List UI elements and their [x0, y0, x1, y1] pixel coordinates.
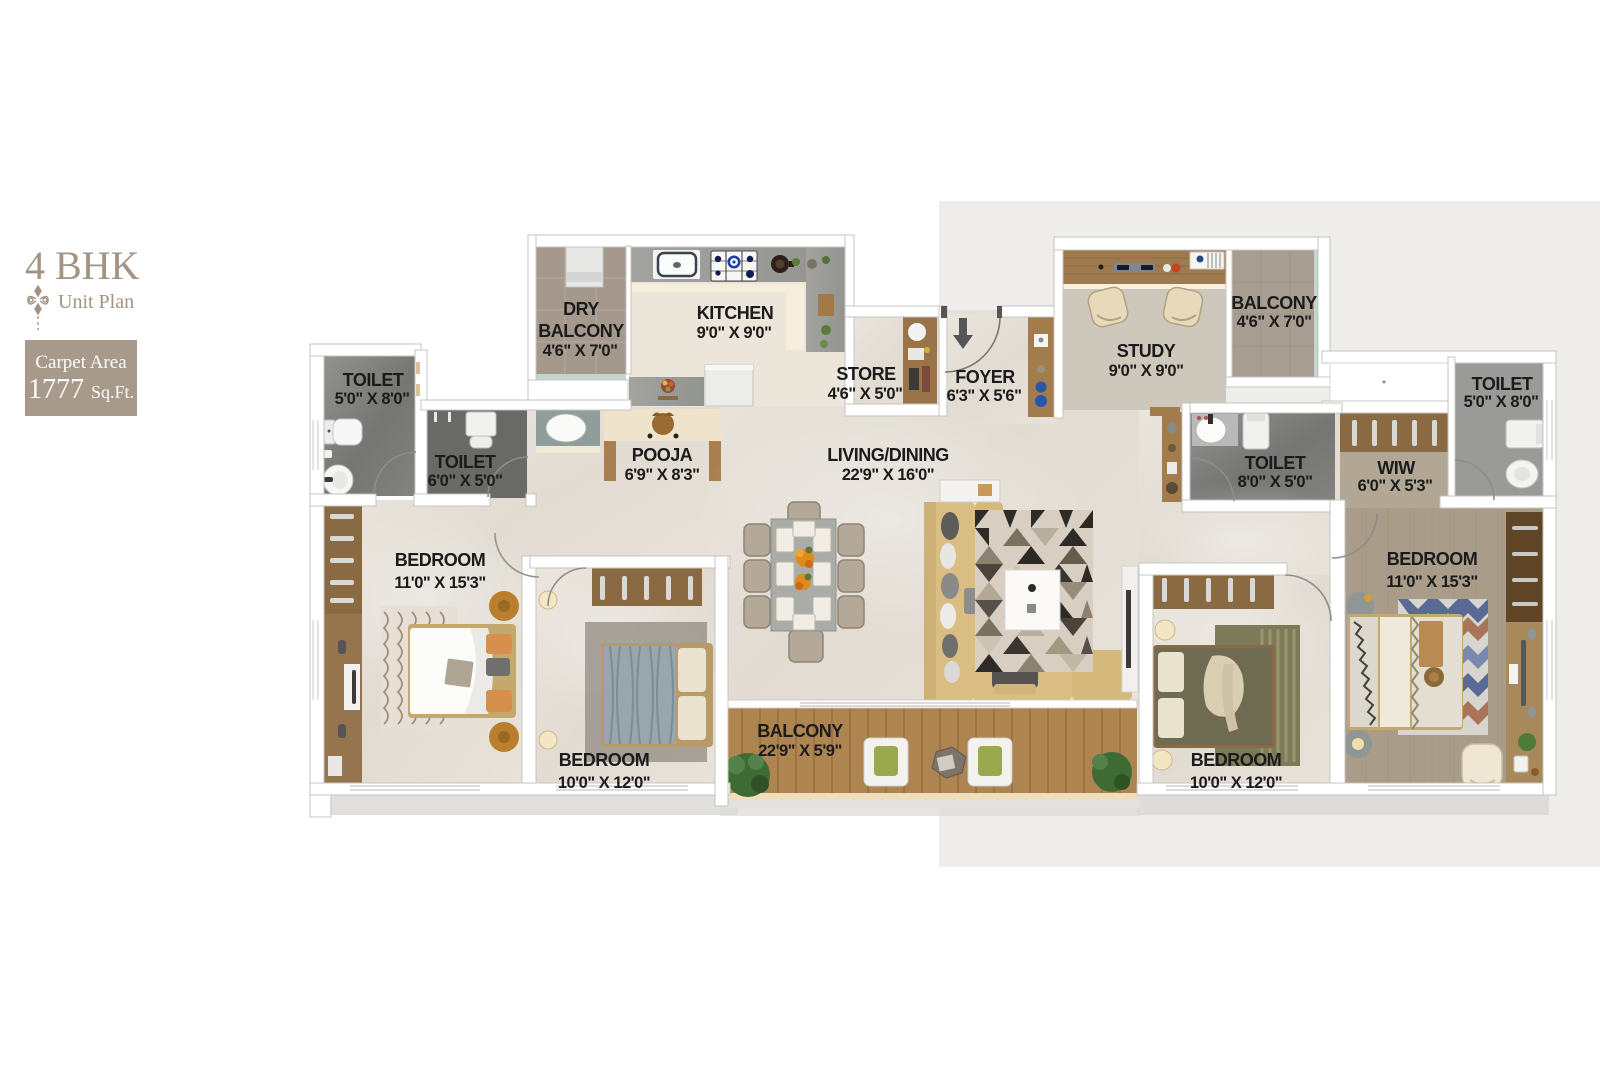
svg-text:10'0" X 12'0": 10'0" X 12'0"	[558, 774, 650, 792]
svg-text:11'0" X 15'3": 11'0" X 15'3"	[394, 574, 485, 592]
svg-text:5'0" X 8'0": 5'0" X 8'0"	[335, 390, 410, 408]
svg-text:TOILET: TOILET	[1245, 453, 1306, 473]
svg-text:10'0" X 12'0": 10'0" X 12'0"	[1190, 774, 1282, 792]
svg-text:BEDROOM: BEDROOM	[1191, 750, 1282, 770]
svg-text:4'6" X 7'0": 4'6" X 7'0"	[543, 342, 618, 360]
svg-text:BALCONY: BALCONY	[757, 721, 843, 741]
svg-text:6'0" X 5'3": 6'0" X 5'3"	[1358, 477, 1433, 495]
svg-text:6'9" X 8'3": 6'9" X 8'3"	[625, 466, 700, 484]
svg-text:4'6" X 7'0": 4'6" X 7'0"	[1237, 313, 1312, 331]
svg-text:22'9" X 16'0": 22'9" X 16'0"	[842, 466, 934, 484]
svg-text:POOJA: POOJA	[632, 445, 693, 465]
svg-text:9'0" X 9'0": 9'0" X 9'0"	[1109, 362, 1184, 380]
svg-text:STUDY: STUDY	[1117, 341, 1176, 361]
svg-text:WIW: WIW	[1377, 458, 1415, 478]
svg-text:8'0" X 5'0": 8'0" X 5'0"	[1238, 473, 1313, 491]
svg-text:22'9" X 5'9": 22'9" X 5'9"	[758, 742, 842, 760]
svg-text:TOILET: TOILET	[1472, 374, 1533, 394]
svg-text:BEDROOM: BEDROOM	[559, 750, 650, 770]
svg-text:FOYER: FOYER	[955, 367, 1015, 387]
svg-text:6'0" X 5'0": 6'0" X 5'0"	[428, 472, 503, 490]
svg-text:6'3" X 5'6": 6'3" X 5'6"	[947, 387, 1022, 405]
svg-text:BALCONY: BALCONY	[1231, 293, 1317, 313]
svg-text:Unit Plan: Unit Plan	[58, 291, 134, 313]
svg-text:BEDROOM: BEDROOM	[1387, 549, 1478, 569]
svg-text:STORE: STORE	[836, 364, 896, 384]
svg-text:5'0" X 8'0": 5'0" X 8'0"	[1464, 393, 1539, 411]
svg-text:BALCONY: BALCONY	[538, 321, 624, 341]
svg-text:4'6" X 5'0": 4'6" X 5'0"	[828, 385, 903, 403]
svg-text:Carpet Area: Carpet Area	[35, 352, 127, 373]
svg-text:TOILET: TOILET	[343, 370, 404, 390]
svg-text:9'0" X 9'0": 9'0" X 9'0"	[697, 324, 772, 342]
svg-text:4 BHK: 4 BHK	[25, 243, 140, 288]
svg-text:11'0" X 15'3": 11'0" X 15'3"	[1386, 573, 1477, 591]
svg-text:KITCHEN: KITCHEN	[697, 303, 774, 323]
svg-text:BEDROOM: BEDROOM	[395, 550, 486, 570]
svg-text:LIVING/DINING: LIVING/DINING	[827, 445, 949, 465]
svg-text:TOILET: TOILET	[435, 452, 496, 472]
svg-text:DRY: DRY	[563, 299, 599, 319]
